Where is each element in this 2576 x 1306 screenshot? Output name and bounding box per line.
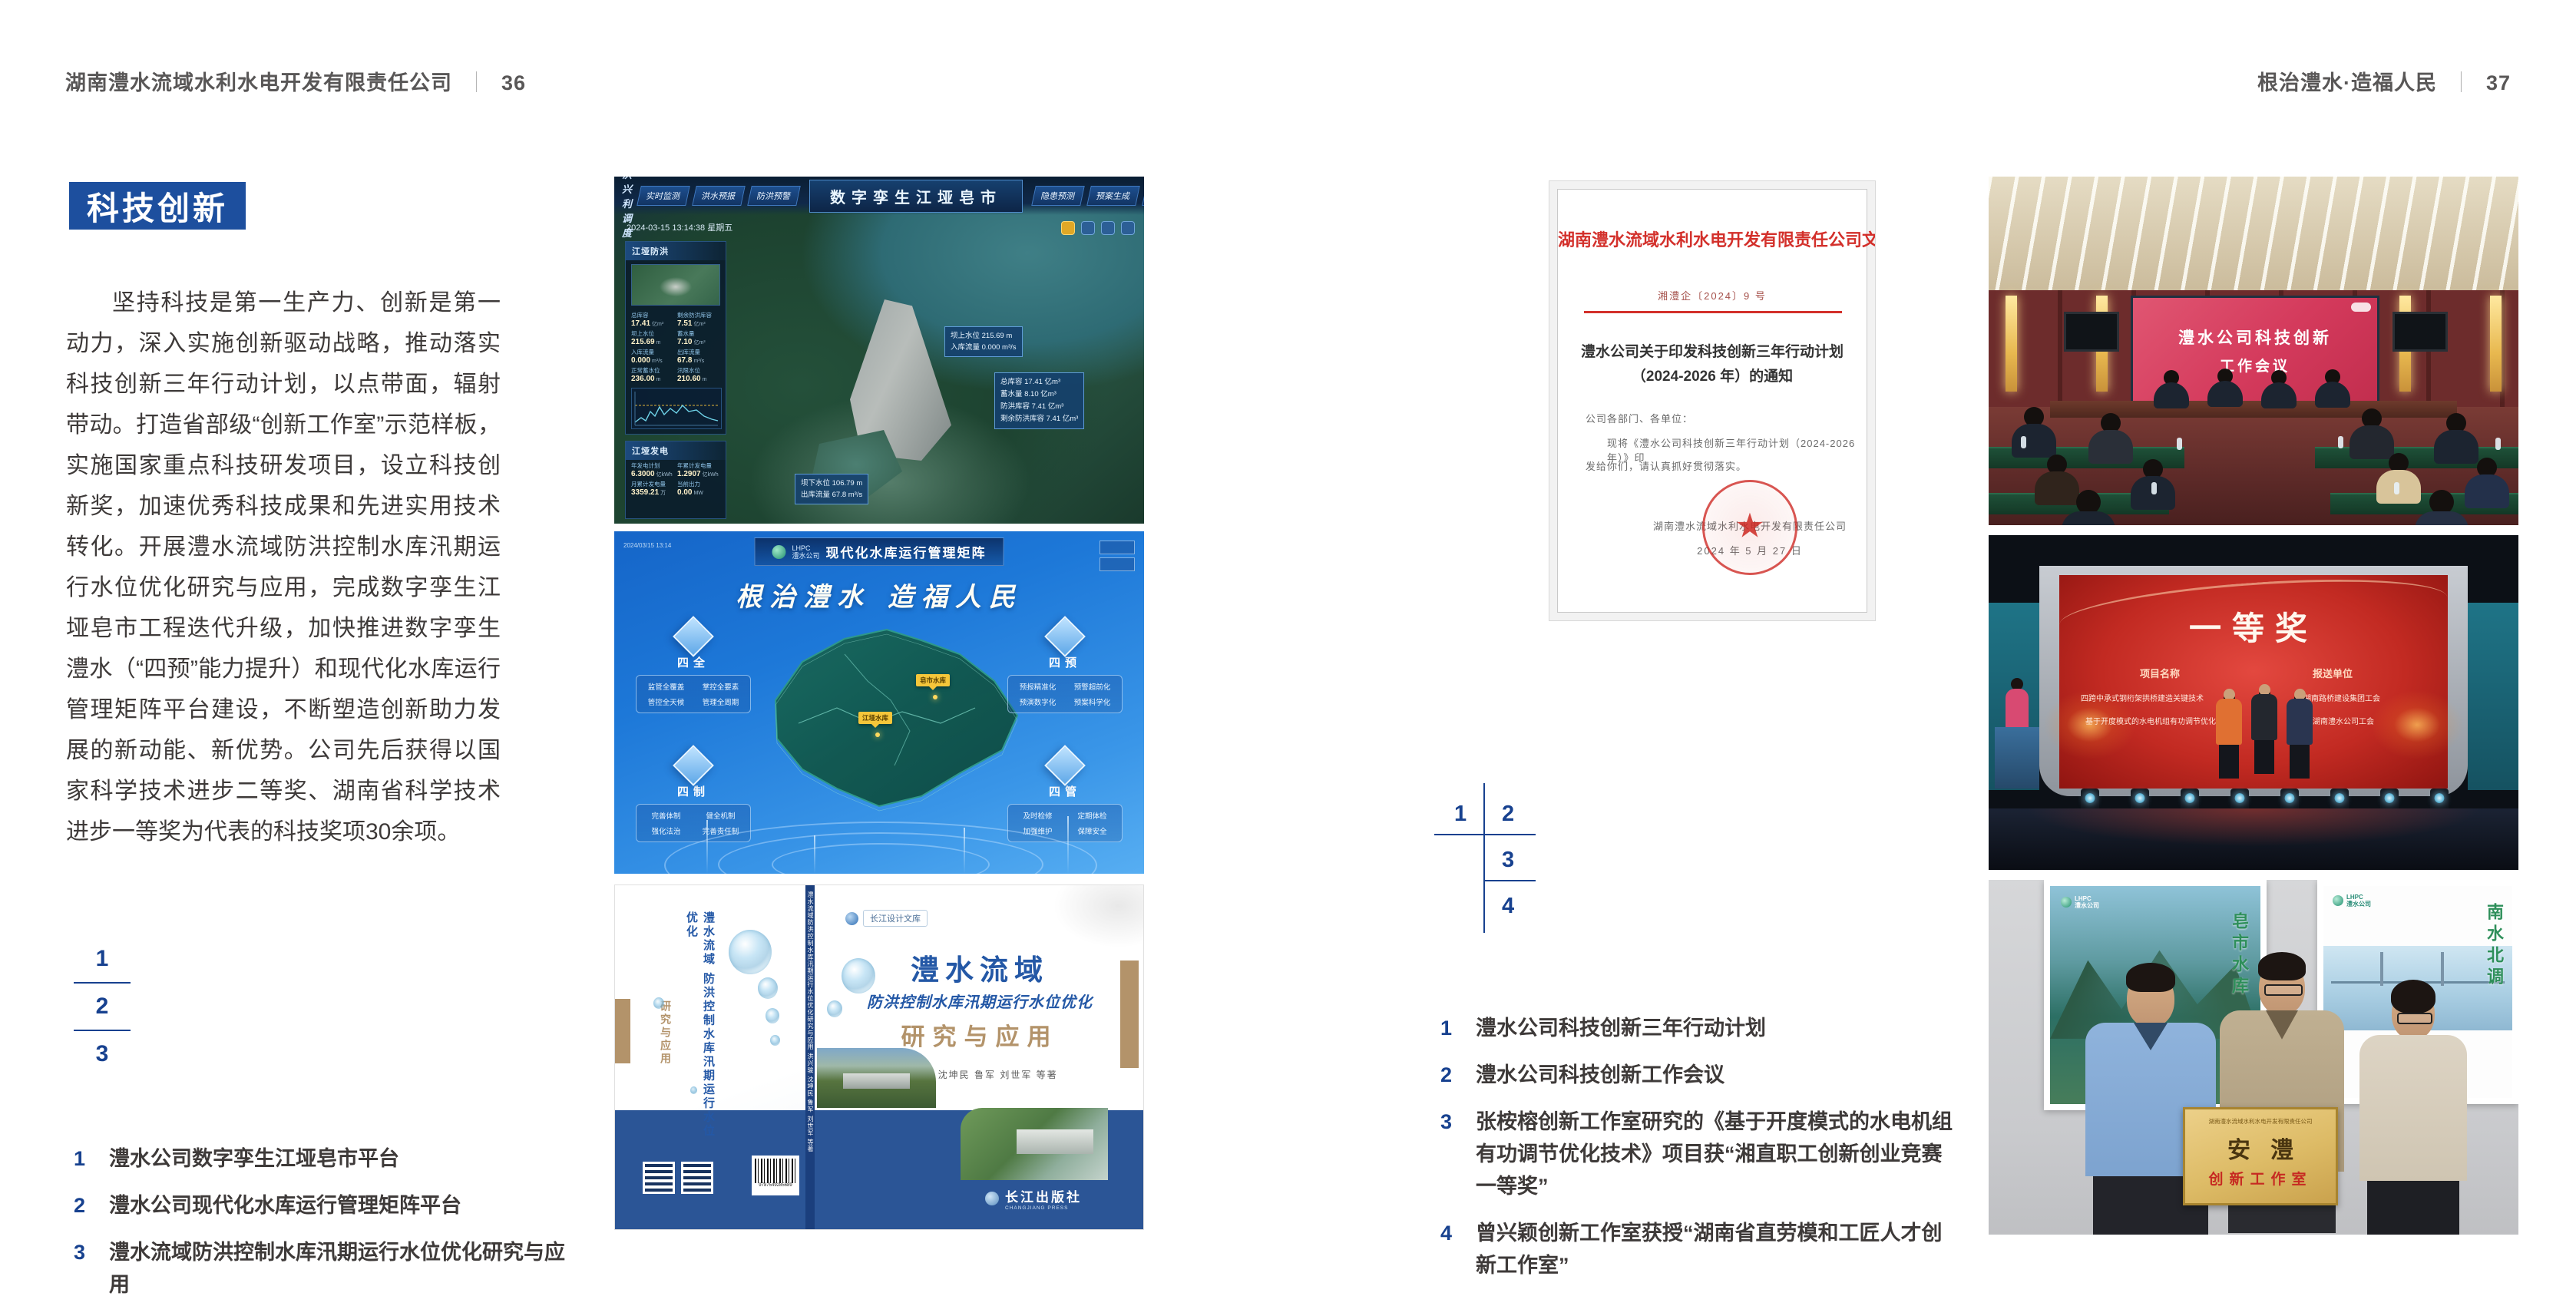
figure-index-number: 3 bbox=[74, 1041, 131, 1067]
plaque-title: 安澧 bbox=[2185, 1131, 2336, 1165]
audience-silhouette bbox=[2415, 490, 2469, 525]
award-row-project: 基于开度模式的水电机组有功调节优化技术 bbox=[2085, 715, 2231, 726]
award-row-org: 湖南澧水公司工会 bbox=[2313, 715, 2374, 726]
audience-silhouette bbox=[2062, 490, 2115, 525]
lhpc-logo: LHPC澧水公司 bbox=[2333, 894, 2371, 908]
caption-number: 1 bbox=[74, 1142, 92, 1175]
left-page-header: 湖南澧水流域水利水电开发有限责任公司｜36 bbox=[65, 66, 526, 96]
map-marker-dot bbox=[875, 732, 880, 737]
reflective-stage-floor bbox=[1989, 808, 2518, 870]
stat-cell: 年累计发电量1.2907亿kWh bbox=[677, 461, 720, 478]
wall-lamp bbox=[2490, 296, 2502, 392]
dashboard-title: 数字孪生江垭皂市 bbox=[809, 180, 1023, 213]
header-divider: ｜ bbox=[466, 71, 488, 94]
lhpc-logo-icon bbox=[2333, 895, 2343, 906]
audience-silhouette bbox=[2465, 458, 2509, 508]
section-title: 科技创新 bbox=[69, 182, 246, 230]
company-name: 湖南澧水流域水利水电开发有限责任公司 bbox=[65, 71, 452, 94]
company-motto: 根治澧水·造福人民 bbox=[2257, 71, 2437, 94]
bridge-pylon bbox=[2380, 952, 2383, 986]
figure-reservoir-management-matrix: 2024/03/15 13:14 LHPC澧水公司 现代化水库运行管理矩阵 根治… bbox=[614, 531, 1144, 874]
figure-index-number: 3 bbox=[1502, 848, 1514, 873]
dashboard-top-bar: 防洪兴利调度 实时监测 洪水预报 防洪预警 数字孪生江垭皂市 隐患预测 预案生成… bbox=[614, 177, 1144, 215]
callout-upstream-level: 坝上水位 215.69 m入库流量 0.000 m³/s bbox=[944, 326, 1023, 357]
stat-grid: 总库容17.41亿m³ 剩余防洪库容7.51亿m³ 坝上水位215.69m 蓄水… bbox=[626, 309, 726, 385]
page-number-right: 37 bbox=[2486, 71, 2511, 94]
plaque-header: 湖南澧水流域水利水电开发有限责任公司 bbox=[2185, 1117, 2336, 1126]
stat-cell: 汛限水位210.60m bbox=[677, 366, 720, 383]
awardee-navy-uniform bbox=[2287, 693, 2313, 779]
panel-jiangya-power-generation: 江垭发电 年发电计划6.3000亿kWh 年累计发电量1.2907亿kWh 月累… bbox=[625, 441, 726, 519]
stat-grid: 年发电计划6.3000亿kWh 年累计发电量1.2907亿kWh 月累计发电量3… bbox=[626, 460, 726, 498]
document-red-header: 湖南澧水流域水利水电开发有限责任公司文件 bbox=[1558, 226, 1867, 251]
water-droplet bbox=[758, 977, 778, 999]
document-page: 湖南澧水流域水利水电开发有限责任公司文件 湘澧企〔2024〕9 号 澧水公司关于… bbox=[1557, 189, 1867, 613]
group-icon bbox=[1044, 616, 1086, 657]
map-marker-jiangya: 江垭水库 bbox=[858, 712, 892, 724]
wall-tv bbox=[2064, 312, 2119, 352]
document-number: 湘澧企〔2024〕9 号 bbox=[1558, 288, 1867, 303]
stat-cell: 正常蓄水位236.00m bbox=[631, 366, 674, 383]
dam-canyon-photo bbox=[817, 1048, 936, 1108]
water-level-chart bbox=[631, 388, 722, 429]
water-bottle bbox=[2021, 436, 2026, 448]
lhpc-logo: LHPC澧水公司 bbox=[2061, 895, 2099, 909]
figure-innovation-meeting-photo: 澧水公司科技创新 工作会议 bbox=[1989, 177, 2518, 525]
qr-code bbox=[643, 1162, 675, 1194]
water-bottle bbox=[2495, 438, 2501, 450]
matrix-button-top bbox=[1100, 541, 1135, 554]
screen-glow bbox=[2371, 690, 2463, 759]
changjiang-design-logo-icon bbox=[845, 912, 858, 925]
callout-downstream-level: 坝下水位 106.79 m出库流量 67.8 m³/s bbox=[795, 474, 868, 504]
meeting-ceiling bbox=[1989, 177, 2518, 292]
figure-index-number: 1 bbox=[1454, 802, 1467, 827]
series-badge: 长江设计文库 bbox=[845, 910, 928, 927]
qr-code bbox=[681, 1162, 713, 1194]
official-red-seal: ★ bbox=[1702, 480, 1797, 575]
index-divider-line bbox=[1483, 783, 1485, 933]
figure-index-right: 1 2 3 4 bbox=[1434, 783, 1542, 933]
back-cover-vertical-subtitle: 研究与应用 bbox=[658, 1000, 673, 1093]
panel-jiangya-flood-control: 江垭防洪 总库容17.41亿m³ 剩余防洪库容7.51亿m³ 坝上水位215.6… bbox=[625, 241, 726, 435]
panel-title: 江垭防洪 bbox=[626, 242, 726, 260]
page-number-left: 36 bbox=[501, 71, 526, 94]
caption-text: 澧水公司科技创新工作会议 bbox=[1476, 1059, 1724, 1091]
audience-silhouette bbox=[2434, 413, 2478, 464]
layers-icon bbox=[1081, 221, 1095, 235]
caption-text: 澧水流域防洪控制水库汛期运行水位优化研究与应用 bbox=[109, 1236, 565, 1301]
water-bottle bbox=[2177, 438, 2182, 450]
tab-hazard-prediction: 隐患预测 bbox=[1031, 186, 1085, 206]
figure-official-document: 湖南澧水流域水利水电开发有限责任公司文件 湘澧企〔2024〕9 号 澧水公司关于… bbox=[1549, 181, 1875, 620]
figure-index-number: 2 bbox=[1502, 802, 1514, 827]
caption-number: 4 bbox=[1440, 1217, 1459, 1281]
group-icon bbox=[673, 745, 714, 786]
light-pillar bbox=[814, 835, 815, 874]
award-title: 一等奖 bbox=[2059, 603, 2448, 650]
map-marker-zaoshi: 皂市水库 bbox=[916, 674, 950, 686]
left-captions: 1 澧水公司数字孪生江垭皂市平台 2 澧水公司现代化水库运行管理矩阵平台 3 澧… bbox=[74, 1142, 565, 1306]
audience-silhouette bbox=[2012, 407, 2056, 458]
light-pillar bbox=[706, 820, 708, 874]
stat-cell: 入库流量0.000m³/s bbox=[631, 348, 674, 365]
innovation-workshop-plaque: 湖南澧水流域水利水电开发有限责任公司 安澧 创新工作室 bbox=[2183, 1107, 2338, 1205]
locate-icon bbox=[1101, 221, 1115, 235]
seal-star-icon: ★ bbox=[1734, 506, 1764, 545]
matrix-datetime: 2024/03/15 13:14 bbox=[623, 542, 671, 549]
series-name: 长江设计文库 bbox=[863, 910, 928, 927]
stat-cell: 总库容17.41亿m³ bbox=[631, 311, 674, 328]
caption-row: 1 澧水公司数字孪生江垭皂市平台 bbox=[74, 1142, 565, 1175]
caption-number: 3 bbox=[1440, 1106, 1459, 1202]
caption-text: 张桉榕创新工作室研究的《基于开度模式的水电机组有功调节优化技术》项目获“湘直职工… bbox=[1476, 1106, 1959, 1202]
header-divider: ｜ bbox=[2451, 71, 2472, 94]
back-cover-tan-block bbox=[615, 999, 630, 1063]
book-title-line2: 防洪控制水库汛期运行水位优化 bbox=[815, 990, 1144, 1012]
publisher-logo-icon bbox=[985, 1192, 999, 1205]
index-divider-line bbox=[74, 982, 131, 984]
stat-cell: 当前出力0.00MW bbox=[677, 480, 720, 497]
caption-row: 2 澧水公司现代化水库运行管理矩阵平台 bbox=[74, 1189, 565, 1222]
isbn-barcode: 9787549285689 bbox=[752, 1156, 799, 1195]
matrix-group-siguan: 四管 及时检修定期体检 加强维护保障安全 bbox=[1007, 751, 1123, 842]
caption-row: 3 张桉榕创新工作室研究的《基于开度模式的水电机组有功调节优化技术》项目获“湘直… bbox=[1440, 1106, 1959, 1202]
light-pillar bbox=[964, 828, 965, 874]
group-icon bbox=[673, 616, 714, 657]
stat-cell: 月累计发电量3359.21万 bbox=[631, 480, 674, 497]
caption-text: 澧水公司科技创新三年行动计划 bbox=[1476, 1012, 1766, 1044]
audience-silhouette bbox=[2349, 408, 2394, 459]
callout-reservoir-capacity: 总库容 17.41 亿m³蓄水量 8.10 亿m³ 防洪库容 7.41 亿m³剩… bbox=[994, 372, 1084, 429]
figure-research-book-cover: 澧水流域防洪控制水库汛期运行水位优化研究与应用 洪兴骏 沈坤民 鲁军 刘世军 等… bbox=[614, 884, 1144, 1230]
publisher-latin-name: CHANGJIANG PRESS bbox=[1005, 1205, 1082, 1211]
matrix-group-sizhi: 四制 完善体制健全机制 强化法治完善责任制 bbox=[636, 751, 751, 842]
document-body-line2: 发给你们，请认真抓好贯彻落实。 bbox=[1586, 458, 1747, 473]
woman-beige-shirt bbox=[2348, 987, 2478, 1235]
panelist-silhouette bbox=[2154, 370, 2189, 408]
dashboard-datetime: 2024-03-15 13:14:38 星期五 bbox=[627, 221, 732, 233]
host-silhouette bbox=[2006, 678, 2029, 733]
presenter-dark-suit bbox=[2251, 689, 2277, 774]
lhpc-logo-text: LHPC澧水公司 bbox=[792, 544, 819, 560]
publisher-block: 长江出版社 CHANGJIANG PRESS bbox=[945, 1186, 1122, 1211]
water-droplet bbox=[690, 1086, 697, 1094]
figure-index-number: 2 bbox=[74, 994, 131, 1020]
figure-award-ceremony-photo: 一等奖 项目名称 报送单位 四跨中承式钢桁架拱桥建造关键技术 湖南路桥建设集团工… bbox=[1989, 535, 2518, 870]
bridge-pylon bbox=[2441, 952, 2444, 986]
stat-cell: 出库流量67.8m³/s bbox=[677, 348, 720, 365]
water-droplet bbox=[653, 997, 664, 1009]
plaque-subtitle: 创新工作室 bbox=[2185, 1168, 2336, 1189]
front-cover-tan-bar bbox=[1120, 960, 1139, 1068]
dam-face bbox=[843, 1073, 910, 1089]
poster-vertical-title: 南水北调 bbox=[2482, 903, 2506, 989]
wall-lamp bbox=[2006, 296, 2017, 392]
tab-realtime-monitoring: 实时监测 bbox=[637, 186, 690, 206]
figure-index-left: 1 2 3 bbox=[74, 946, 131, 1067]
matrix-title: 现代化水库运行管理矩阵 bbox=[826, 542, 987, 561]
tab-plan-generation: 预案生成 bbox=[1086, 186, 1140, 206]
panelist-silhouette bbox=[2261, 370, 2297, 408]
index-divider-line bbox=[1434, 834, 1536, 835]
audience-silhouette bbox=[2088, 413, 2133, 464]
caption-row: 1 澧水公司科技创新三年行动计划 bbox=[1440, 1012, 1959, 1044]
dam-hillside-photo bbox=[961, 1108, 1108, 1180]
caption-number: 1 bbox=[1440, 1012, 1459, 1044]
dashboard-toolbar-icons bbox=[1061, 221, 1135, 235]
document-red-rule bbox=[1584, 311, 1842, 313]
caption-text: 澧水公司数字孪生江垭皂市平台 bbox=[109, 1142, 399, 1175]
panel-title: 江垭发电 bbox=[626, 441, 726, 460]
lhpc-logo-text: LHPC澧水公司 bbox=[2346, 894, 2371, 908]
lhpc-logo-icon bbox=[2061, 897, 2072, 908]
wall-tv bbox=[2392, 312, 2448, 352]
book-title-line3: 研究与应用 bbox=[815, 1017, 1144, 1052]
caption-text: 曾兴颖创新工作室获授“湖南省直劳模和工匠人才创新工作室” bbox=[1476, 1217, 1959, 1281]
column-header-org: 报送单位 bbox=[2313, 666, 2353, 680]
matrix-title-bar: LHPC澧水公司 现代化水库运行管理矩阵 bbox=[754, 537, 1004, 566]
publisher-name: 长江出版社 bbox=[1005, 1186, 1082, 1205]
host-podium bbox=[1995, 727, 2039, 789]
water-bottle bbox=[2338, 436, 2343, 448]
book-spine-text: 澧水流域防洪控制水库汛期运行水位优化研究与应用 洪兴骏 沈坤民 鲁军 刘世军 等… bbox=[805, 891, 815, 1183]
index-divider-line bbox=[74, 1030, 131, 1031]
dam-face bbox=[1017, 1129, 1093, 1154]
award-row-org: 湖南路桥建设集团工会 bbox=[2303, 692, 2380, 703]
map-marker-dot bbox=[933, 695, 937, 699]
caption-row: 2 澧水公司科技创新工作会议 bbox=[1440, 1059, 1959, 1091]
caption-number: 2 bbox=[1440, 1059, 1459, 1091]
barcode-number: 9787549285689 bbox=[755, 1183, 796, 1188]
stage-side-screen bbox=[2468, 603, 2518, 790]
screen-title-line1: 澧水公司科技创新 bbox=[2133, 326, 2377, 349]
tab-flood-warning: 防洪预警 bbox=[747, 186, 801, 206]
stat-cell: 剩余防洪库容7.51亿m³ bbox=[677, 311, 720, 328]
settings-icon bbox=[1121, 221, 1135, 235]
document-salutation: 公司各部门、各单位： bbox=[1586, 411, 1693, 425]
group-icon bbox=[1044, 745, 1086, 786]
index-divider-line bbox=[1483, 880, 1536, 881]
caption-row: 4 曾兴颖创新工作室获授“湖南省直劳模和工匠人才创新工作室” bbox=[1440, 1217, 1959, 1281]
water-bottle bbox=[2151, 482, 2157, 494]
caption-text: 澧水公司现代化水库运行管理矩阵平台 bbox=[109, 1189, 461, 1222]
tab-dispatch-execution: 调度执行 bbox=[1142, 186, 1144, 206]
lhpc-logo-text: LHPC澧水公司 bbox=[2075, 895, 2099, 909]
panelist-silhouette bbox=[2315, 369, 2350, 408]
matrix-group-siyu: 四预 预报精准化预警超前化 预演数字化预案科学化 bbox=[1007, 622, 1123, 713]
section-body-paragraph: 坚持科技是第一生产力、创新是第一动力，深入实施创新驱动战略，推动落实科技创新三年… bbox=[66, 283, 501, 852]
caption-row: 3 澧水流域防洪控制水库汛期运行水位优化研究与应用 bbox=[74, 1236, 565, 1301]
figure-workshop-plaque-photo: LHPC澧水公司 皂市水库 LHPC澧水公司 南水北调 bbox=[1989, 880, 2518, 1235]
water-droplet bbox=[770, 1035, 780, 1046]
water-droplet bbox=[729, 930, 772, 974]
water-droplet bbox=[766, 1008, 779, 1023]
award-row-project: 四跨中承式钢桁架拱桥建造关键技术 bbox=[2081, 692, 2204, 703]
matrix-group-siquan: 四全 监管全覆盖掌控全要素 管控全天候管理全周期 bbox=[636, 622, 751, 713]
lhpc-logo-icon bbox=[772, 545, 785, 559]
dam-thumbnail-photo bbox=[631, 264, 720, 306]
right-captions: 1 澧水公司科技创新三年行动计划 2 澧水公司科技创新工作会议 3 张桉榕创新工… bbox=[1440, 1012, 1959, 1296]
water-bottle bbox=[2394, 482, 2399, 494]
column-header-project: 项目名称 bbox=[2140, 666, 2180, 680]
matrix-button-bottom bbox=[1100, 557, 1135, 571]
document-title-line1: 澧水公司关于印发科技创新三年行动计划 bbox=[1558, 340, 1867, 361]
tab-flood-forecast: 洪水预报 bbox=[692, 186, 746, 206]
right-page-header: 根治澧水·造福人民｜37 bbox=[2257, 66, 2511, 96]
document-title-line2: （2024-2026 年）的通知 bbox=[1558, 365, 1867, 385]
slide-logo bbox=[2351, 303, 2371, 312]
figure-index-number: 1 bbox=[74, 946, 131, 972]
back-cover-vertical-title: 澧水流域 防洪控制水库汛期运行水位优化 bbox=[683, 911, 716, 1142]
weather-icon bbox=[1061, 221, 1075, 235]
stat-cell: 蓄水量7.10亿m³ bbox=[677, 329, 720, 346]
caption-number: 3 bbox=[74, 1236, 92, 1301]
figure-digital-twin-dashboard: 防洪兴利调度 实时监测 洪水预报 防洪预警 数字孪生江垭皂市 隐患预测 预案生成… bbox=[614, 177, 1144, 524]
awardee-orange-jacket bbox=[2216, 693, 2242, 779]
stat-cell: 年发电计划6.3000亿kWh bbox=[631, 461, 674, 478]
barcode-bars bbox=[755, 1159, 796, 1183]
panelist-silhouette bbox=[2207, 369, 2243, 407]
stat-cell: 坝上水位215.69m bbox=[631, 329, 674, 346]
light-pillar bbox=[1067, 816, 1069, 874]
book-title-line1: 澧水流域 bbox=[815, 947, 1144, 988]
caption-number: 2 bbox=[74, 1189, 92, 1222]
figure-index-number: 4 bbox=[1502, 894, 1514, 919]
brochure-spread: 湖南澧水流域水利水电开发有限责任公司｜36 根治澧水·造福人民｜37 科技创新 … bbox=[0, 0, 2576, 1306]
